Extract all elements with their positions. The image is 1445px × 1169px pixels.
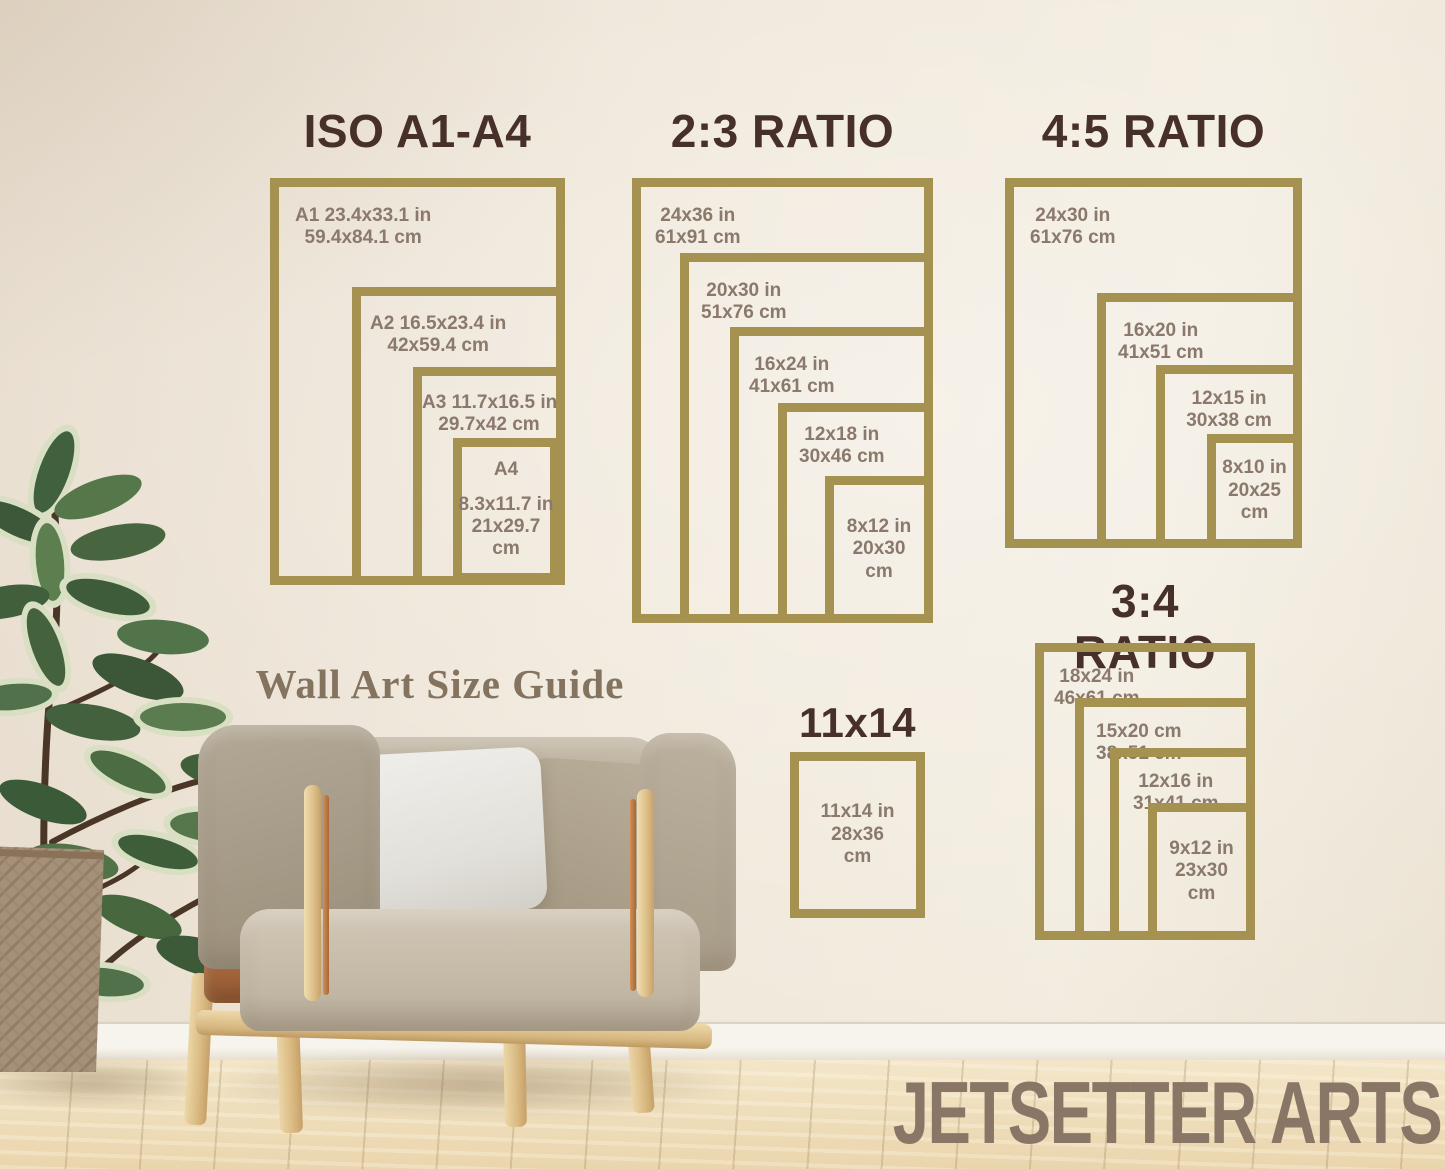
frame-9x12: 9x12 in 23x30 cm: [1148, 803, 1255, 940]
size-label-line: 41x51 cm: [1118, 342, 1204, 364]
size-label-line: cm: [1169, 883, 1233, 905]
size-label-line: 8x10 in: [1222, 457, 1286, 479]
size-label-20x30: 20x30 in 51x76 cm: [701, 280, 787, 325]
size-label-line: 21x29.7: [458, 516, 553, 538]
size-label-16x20: 16x20 in 41x51 cm: [1118, 320, 1204, 365]
group-title-11x14: 11x14: [780, 700, 935, 746]
size-label-line: cm: [847, 561, 911, 583]
size-label-12x15: 12x15 in 30x38 cm: [1165, 388, 1293, 433]
size-label-line: 12x16 in: [1133, 771, 1219, 793]
size-label-line: A3 11.7x16.5 in: [422, 392, 556, 414]
size-label-12x18: 12x18 in 30x46 cm: [799, 424, 885, 469]
chair-copper-rod: [323, 795, 329, 995]
size-label-line: 61x91 cm: [655, 227, 741, 249]
size-label-line: 18x24 in: [1054, 666, 1140, 688]
size-label-line: 30x46 cm: [799, 446, 885, 468]
group-title-2-3: 2:3 RATIO: [632, 106, 933, 157]
size-label-line: 59.4x84.1 cm: [295, 227, 431, 249]
size-label-line: 41x61 cm: [749, 376, 835, 398]
size-label-line: 12x15 in: [1165, 388, 1293, 410]
size-label-line: A2 16.5x23.4 in: [370, 313, 506, 335]
size-label-11x14: 11x14 in 28x36 cm: [821, 801, 895, 868]
size-label-line: 23x30: [1169, 860, 1233, 882]
size-label-line: 29.7x42 cm: [422, 414, 556, 436]
size-label-line: 9x12 in: [1169, 838, 1233, 860]
size-label-line: 61x76 cm: [1030, 227, 1116, 249]
size-label-line: 20x30 in: [701, 280, 787, 302]
frame-8x12: 8x12 in 20x30 cm: [825, 476, 933, 623]
size-label-line: 42x59.4 cm: [370, 335, 506, 357]
size-label-line: 20x30: [847, 538, 911, 560]
chair-wood-post: [637, 789, 654, 997]
size-label-line: 12x18 in: [799, 424, 885, 446]
size-label-8x10: 8x10 in 20x25 cm: [1222, 457, 1286, 524]
white-pillow: [352, 746, 548, 918]
chair-wood-post: [304, 785, 321, 1001]
brand-watermark: JETSETTER ARTS: [892, 1069, 1441, 1157]
size-label-line: cm: [1222, 502, 1286, 524]
chair-copper-rod: [630, 799, 636, 991]
size-label-line: cm: [821, 846, 895, 868]
plant-basket: [0, 842, 108, 1077]
size-label-a3: A3 11.7x16.5 in 29.7x42 cm: [422, 392, 556, 437]
size-label-line: 8.3x11.7 in: [458, 494, 553, 516]
size-label-line: 30x38 cm: [1165, 410, 1293, 432]
size-label-24x30: 24x30 in 61x76 cm: [1030, 205, 1116, 250]
size-label-a1: A1 23.4x33.1 in 59.4x84.1 cm: [295, 205, 431, 250]
armchair: [188, 725, 736, 1137]
size-label-a2: A2 16.5x23.4 in 42x59.4 cm: [370, 313, 506, 358]
size-label-line: 24x36 in: [655, 205, 741, 227]
size-label-line: 16x20 in: [1118, 320, 1204, 342]
size-label-line: 20x25: [1222, 480, 1286, 502]
frame-11x14: 11x14 in 28x36 cm: [790, 752, 925, 918]
size-label-16x24: 16x24 in 41x61 cm: [749, 354, 835, 399]
size-label-24x36: 24x36 in 61x91 cm: [655, 205, 741, 250]
size-label-line: 51x76 cm: [701, 302, 787, 324]
size-label-line: A4: [458, 459, 553, 481]
size-label-line: 24x30 in: [1030, 205, 1116, 227]
size-label-line: cm: [458, 538, 553, 560]
group-title-4-5: 4:5 RATIO: [1005, 106, 1302, 157]
size-label-line: 11x14 in: [821, 801, 895, 823]
size-label-8x12: 8x12 in 20x30 cm: [847, 516, 911, 583]
group-title-iso: ISO A1-A4: [270, 106, 565, 157]
size-label-line: 15x20 cm: [1096, 721, 1182, 743]
size-label-a4: A4 8.3x11.7 in 21x29.7 cm: [458, 459, 553, 561]
size-label-line: A1 23.4x33.1 in: [295, 205, 431, 227]
size-label-line: 28x36: [821, 824, 895, 846]
size-label-line: 16x24 in: [749, 354, 835, 376]
frame-a4: A4 8.3x11.7 in 21x29.7 cm: [453, 438, 559, 582]
frame-8x10: 8x10 in 20x25 cm: [1207, 434, 1302, 548]
size-label-line: 8x12 in: [847, 516, 911, 538]
size-label-9x12: 9x12 in 23x30 cm: [1169, 838, 1233, 905]
